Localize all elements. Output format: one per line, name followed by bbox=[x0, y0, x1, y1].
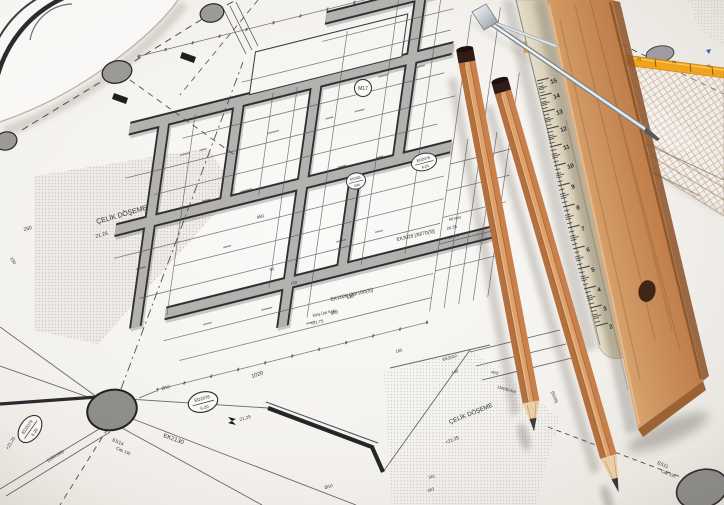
photo-vignette bbox=[0, 0, 724, 505]
photo-canvas: ED2078 6-20 ED2079 6-20 ED2078 6-20 EK02… bbox=[0, 0, 724, 505]
blueprint-photo: ED2078 6-20 ED2079 6-20 ED2078 6-20 EK02… bbox=[0, 0, 724, 505]
